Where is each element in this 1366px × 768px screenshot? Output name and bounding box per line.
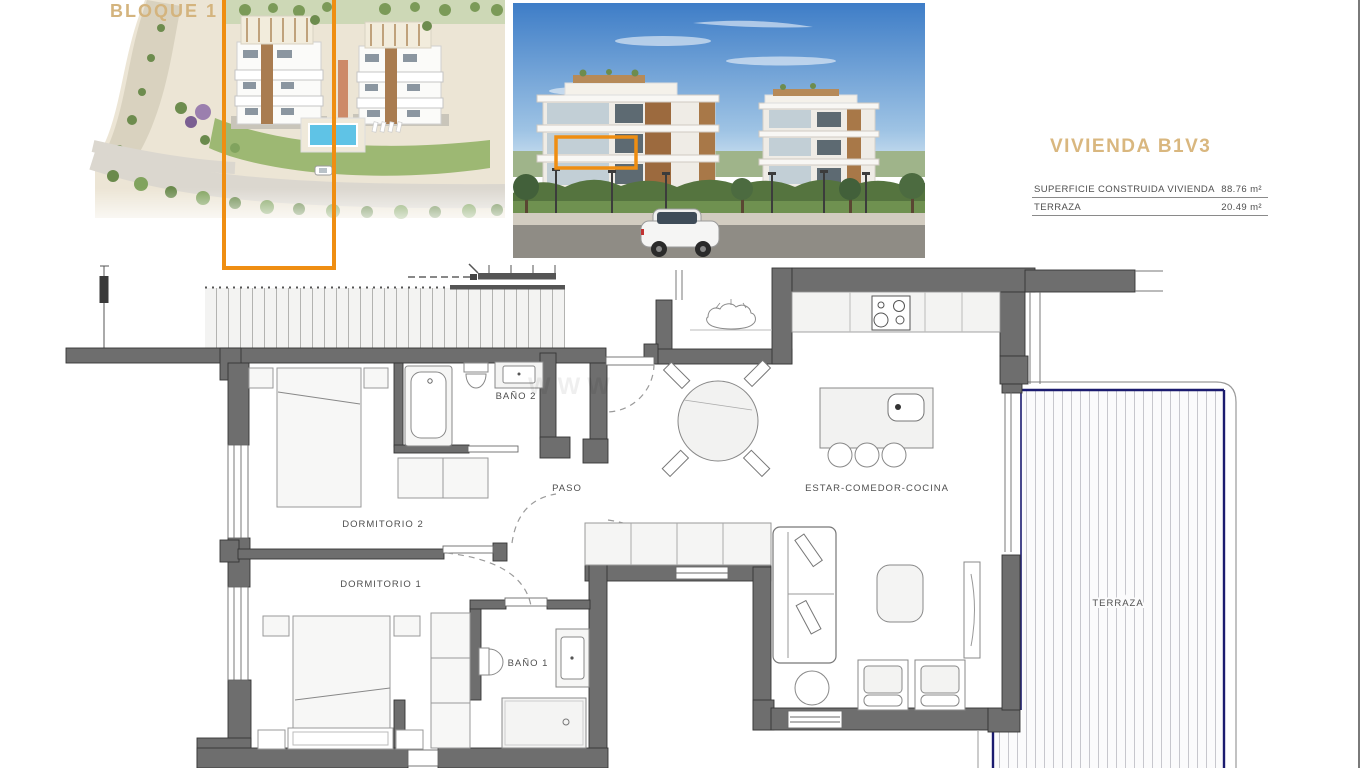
armchair xyxy=(858,660,908,710)
unit-title: VIVIENDA B1V3 xyxy=(1050,136,1268,158)
street-render xyxy=(513,3,925,258)
room-label-bano1: BAÑO 1 xyxy=(508,658,549,669)
room-label-estar: ESTAR-COMEDOR-COCINA xyxy=(805,483,949,494)
kitchen-island xyxy=(820,388,933,467)
unit-info-panel: VIVIENDA B1V3 SUPERFICIE CONSTRUIDA VIVI… xyxy=(1032,136,1268,216)
watermark-text: WWW xyxy=(528,373,617,400)
armchair xyxy=(915,660,965,710)
block1-highlight-box xyxy=(222,0,336,270)
room-label-dormitorio1: DORMITORIO 1 xyxy=(340,579,422,590)
dorm1-furniture xyxy=(258,613,470,749)
info-row-terraza: TERRAZA 20.49 m² xyxy=(1032,198,1268,216)
bloque-label: BLOQUE 1 xyxy=(110,1,218,22)
boundary-post xyxy=(100,266,110,349)
info-value: 88.76 m² xyxy=(1221,184,1266,195)
room-label-paso: PASO xyxy=(552,483,582,494)
room-label-bano2: BAÑO 2 xyxy=(496,391,537,402)
hall-closets xyxy=(585,523,771,565)
info-label: TERRAZA xyxy=(1034,202,1081,213)
wall-extension-lines xyxy=(1135,271,1163,291)
pergola-band xyxy=(205,264,565,349)
kitchen-counter xyxy=(792,292,1000,332)
sidewalk xyxy=(513,213,925,225)
info-label: SUPERFICIE CONSTRUIDA VIVIENDA xyxy=(1034,184,1215,195)
brochure-page: WWW BAÑO 2 PASO DORMITORIO 2 DORMITORIO … xyxy=(0,0,1366,768)
info-value: 20.49 m² xyxy=(1221,202,1266,213)
tv-unit xyxy=(964,562,980,658)
bathroom2-fixtures xyxy=(405,362,543,446)
info-row-superficie: SUPERFICIE CONSTRUIDA VIVIENDA 88.76 m² xyxy=(1032,180,1268,198)
living-furniture xyxy=(773,527,980,710)
room-label-terraza: TERRAZA xyxy=(1092,598,1143,609)
dining-table xyxy=(662,360,770,476)
bathroom1-fixtures xyxy=(479,629,589,748)
sheet-border-line xyxy=(1358,0,1360,768)
room-label-dormitorio2: DORMITORIO 2 xyxy=(342,519,424,530)
cooktop xyxy=(872,296,910,330)
entry-planter xyxy=(690,299,772,330)
red-path xyxy=(338,60,348,118)
